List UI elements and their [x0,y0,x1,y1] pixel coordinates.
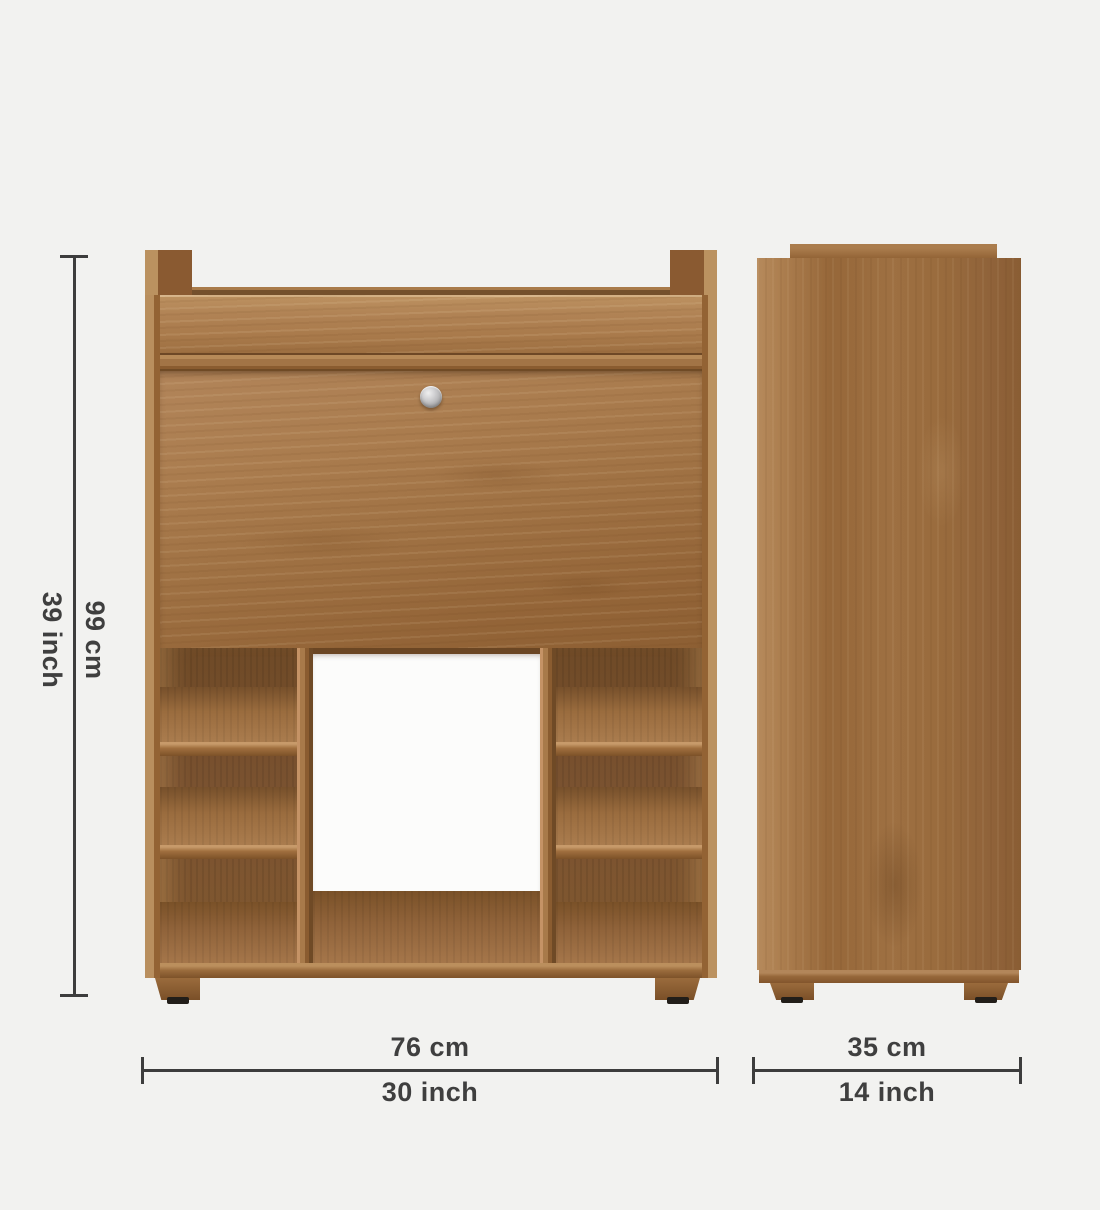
height-dimension-tick-bottom [60,994,88,997]
right-shelf-upper-edge [556,742,702,756]
gallery-post-left [145,250,192,297]
left-shelf-lower-edge [160,845,297,859]
side-wall-left [145,295,160,978]
shelf-divider-left [297,648,313,963]
depth-inch-label: 14 inch [787,1076,987,1108]
left-shelf-lower-surface [160,787,297,845]
left-shelf-upper-edge [160,742,297,756]
dimension-diagram: 99 cm 39 inch [0,0,1100,1210]
height-cm-label: 99 cm [79,560,111,720]
left-column-floor [160,902,297,963]
cabinet-side-view [757,244,1021,1010]
shelf-section [145,648,717,963]
right-shelf-lower-surface [556,787,702,845]
side-panel [757,258,1021,970]
depth-dimension-line [753,1069,1022,1072]
cabinet-base-rail [145,963,717,978]
width-cm-label: 76 cm [330,1031,530,1063]
gallery-post-right [670,250,717,297]
side-top-rail [790,244,997,258]
height-inch-label: 39 inch [36,560,68,720]
door-knob [420,386,442,408]
cabinet-front-view [145,244,717,1010]
width-dimension-line [142,1069,718,1072]
right-column-floor [556,902,702,963]
side-plinth [759,970,1019,983]
open-compartment-floor [313,891,540,963]
width-dimension-tick-right [716,1057,719,1084]
foot-pad-right [667,997,689,1004]
open-compartment [313,654,540,891]
height-dimension-line [73,256,76,996]
width-inch-label: 30 inch [330,1076,530,1108]
foot-pad-left [167,997,189,1004]
right-shelf-upper-surface [556,687,702,742]
depth-dimension-tick-left [752,1057,755,1084]
top-panel-lip [158,353,704,369]
top-panel [158,295,704,353]
side-foot-pad-right [975,997,997,1003]
depth-cm-label: 35 cm [787,1031,987,1063]
side-foot-pad-left [781,997,803,1003]
width-dimension-tick-left [141,1057,144,1084]
left-shelf-upper-surface [160,687,297,742]
shelf-divider-right [540,648,556,963]
right-shelf-lower-edge [556,845,702,859]
height-dimension-tick-top [60,255,88,258]
drop-down-door [160,369,702,648]
side-wall-right [702,295,717,978]
depth-dimension-tick-right [1019,1057,1022,1084]
